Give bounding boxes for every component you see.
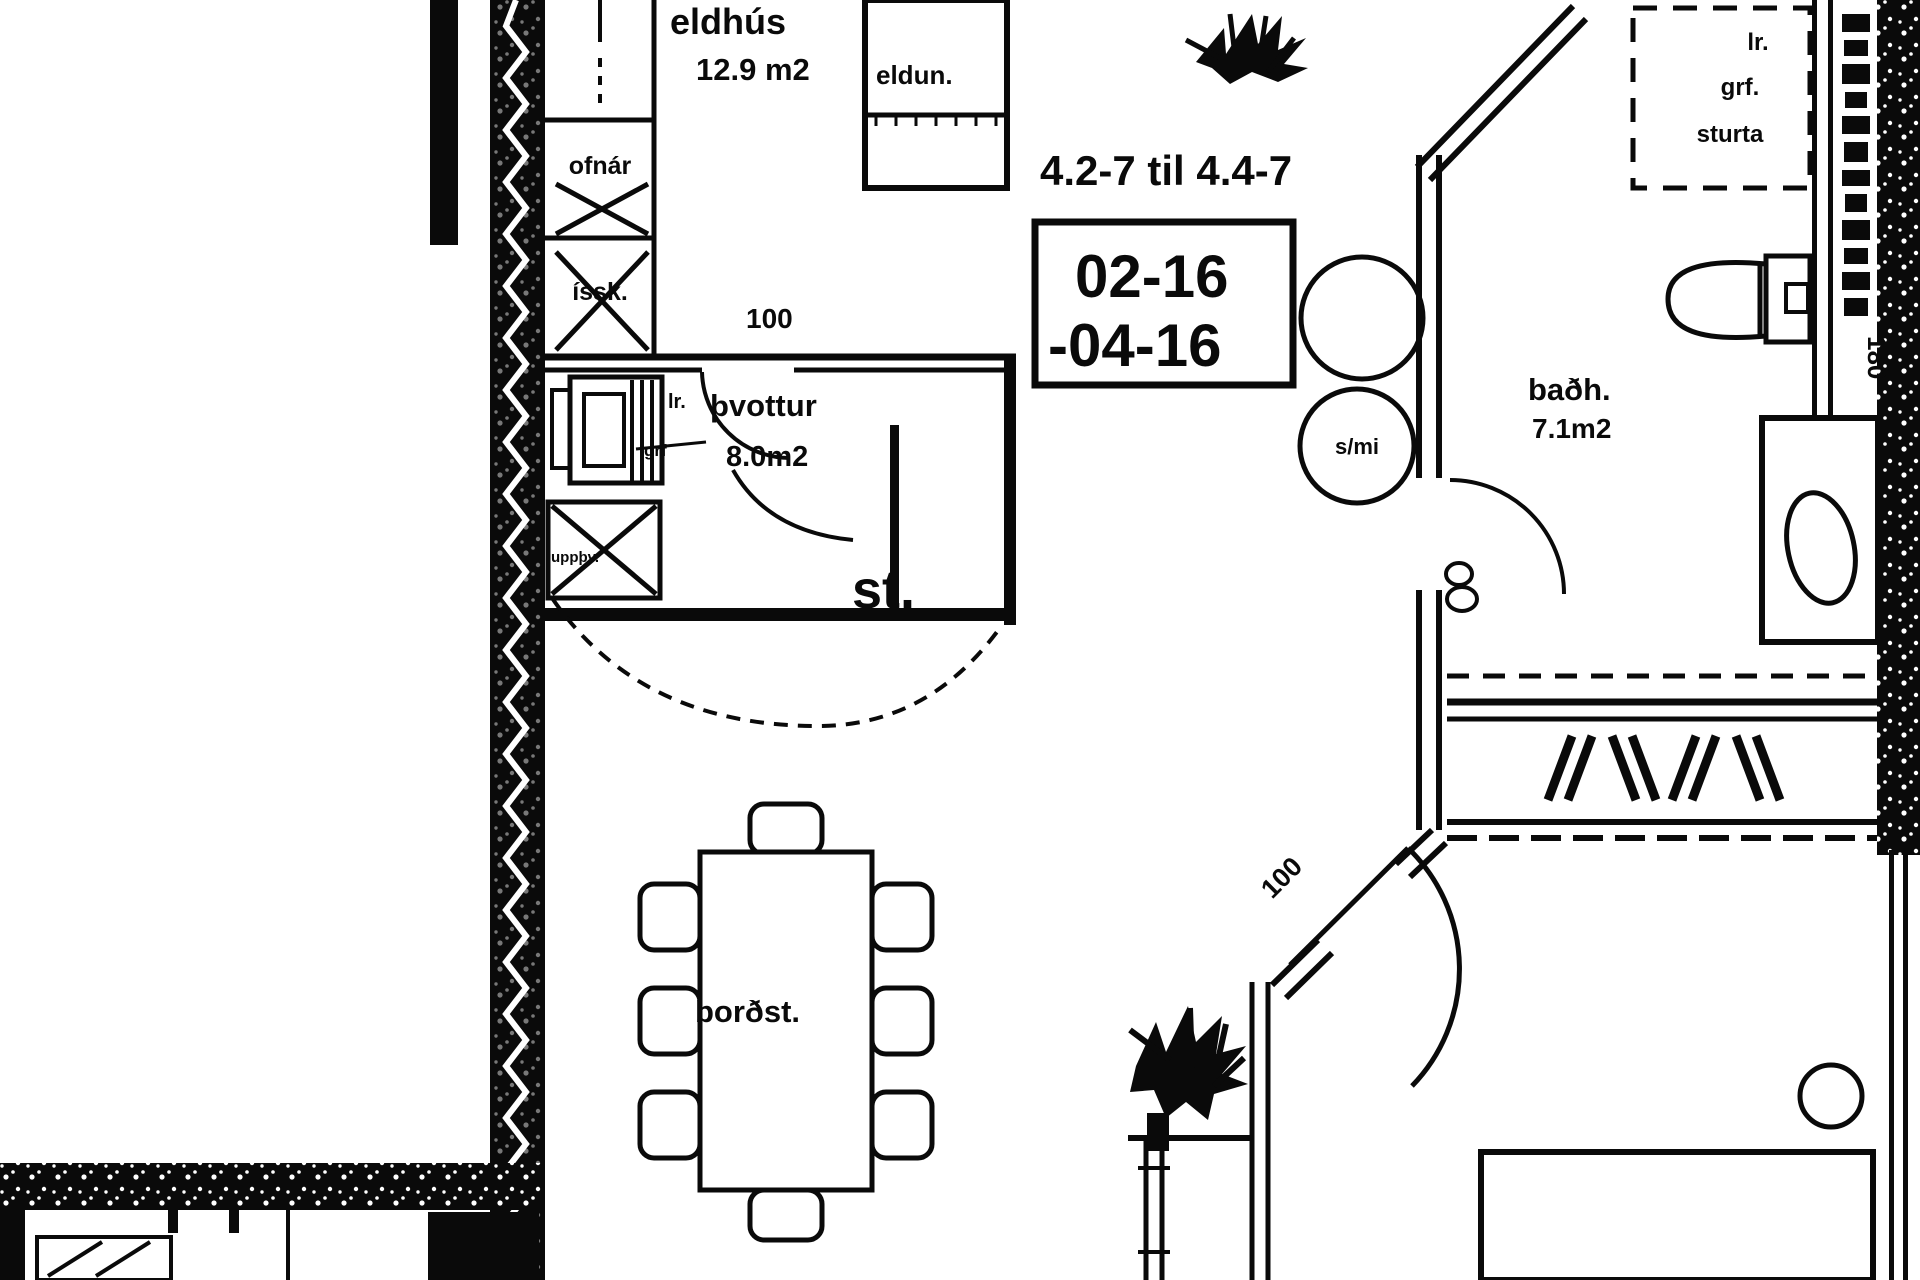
chair: [872, 988, 932, 1054]
door-hinge-icon: [1446, 563, 1472, 585]
wall-right-lower-outer: [1889, 850, 1894, 1280]
bathroom-right-wall-b: [1828, 0, 1833, 420]
wall-left-stub: [430, 0, 458, 245]
bathroom-left-wall: [1416, 155, 1442, 830]
chair: [872, 884, 932, 950]
laundry-grf-label: grf: [644, 441, 667, 460]
wall-left-exterior: [490, 0, 545, 1280]
floor-plan-drawing: eldhús 12.9 m2 eldun. ofnár íssk. 100: [0, 0, 1920, 1280]
chair: [640, 1092, 700, 1158]
side-glyph-strip: [1842, 14, 1870, 316]
hall-circles: [1300, 257, 1423, 503]
plant-top-icon: [1186, 14, 1308, 84]
floor-plan-page: eldhús 12.9 m2 eldun. ofnár íssk. 100: [0, 0, 1920, 1280]
washing-machine: [552, 377, 662, 483]
kitchen-area-label: 12.9 m2: [696, 52, 810, 87]
side-strip-dimension: 180: [1862, 336, 1892, 379]
unit-number-line2: -04-16: [1048, 312, 1221, 379]
shower-label-2: grf.: [1721, 74, 1760, 101]
bottom-left-room: [0, 1209, 539, 1280]
laundry-bottom-wall: [545, 608, 1007, 621]
laundry-area-label: 8.0m2: [726, 441, 808, 473]
bathroom-name-label: baðh.: [1528, 372, 1611, 407]
wall-right-lower-inner: [1903, 850, 1908, 1280]
wall-bottom-left: [0, 1163, 545, 1210]
stove-island: [865, 0, 1007, 188]
unit-range-text: 4.2-7 til 4.4-7: [1040, 147, 1292, 194]
closet-hatch-marks: [1548, 736, 1780, 800]
unit-number-line1: 02-16: [1075, 243, 1228, 310]
bathroom-area-label: 7.1m2: [1532, 413, 1611, 444]
circle-label: s/mi: [1335, 434, 1379, 459]
oven-symbol: [556, 184, 648, 234]
chair: [750, 1190, 822, 1240]
circle-fixture-upper: [1301, 257, 1423, 379]
fridge-label: íssk.: [572, 278, 628, 306]
wall-block: [428, 1212, 539, 1280]
dining-label: borðst.: [695, 994, 800, 1029]
laundry-inner-arc: [733, 470, 853, 540]
door-jamb: [229, 1209, 239, 1233]
chair: [640, 988, 700, 1054]
toilet: [1668, 256, 1810, 342]
bathroom-right-wall-a: [1812, 0, 1817, 420]
bedroom-door-dimension: 100: [1255, 851, 1308, 904]
laundry-drain-label: lr.: [668, 391, 686, 413]
bed: [1481, 1152, 1873, 1280]
laundry-right-wall: [1004, 357, 1016, 625]
bathroom-diagonal-wall: [1417, 6, 1586, 180]
chair: [750, 804, 822, 854]
laundry-name-label: þvottur: [710, 388, 817, 423]
bedroom-door-leaf: [1290, 848, 1408, 965]
plant-bottom-icon: [1130, 1006, 1248, 1120]
closet-corridor: [1447, 676, 1877, 838]
kitchen-name-label: eldhús: [670, 1, 786, 42]
window-bay: [1128, 982, 1268, 1280]
bathroom-door: [1446, 480, 1564, 611]
bedroom-circle-fixture: [1800, 1065, 1862, 1127]
wall-right-exterior: [1877, 0, 1920, 855]
dimension-100-top: 100: [746, 303, 793, 334]
stove-label: eldun.: [876, 60, 953, 90]
bedroom: [1272, 830, 1873, 1280]
bathtub: [1762, 418, 1878, 642]
oven-label: ofnár: [569, 152, 632, 180]
door-jamb: [168, 1209, 178, 1233]
exterior-walls: [0, 0, 1920, 1280]
bedroom-diagonal-wall: [1272, 830, 1446, 998]
shower-label-1: lr.: [1747, 29, 1768, 56]
chair: [872, 1092, 932, 1158]
bedroom-door-arc: [1408, 848, 1459, 1086]
dishwasher-label: uppþv.: [551, 549, 599, 566]
chair: [640, 884, 700, 950]
storage-label: st.: [852, 560, 915, 620]
shower-label-3: sturta: [1697, 121, 1764, 148]
